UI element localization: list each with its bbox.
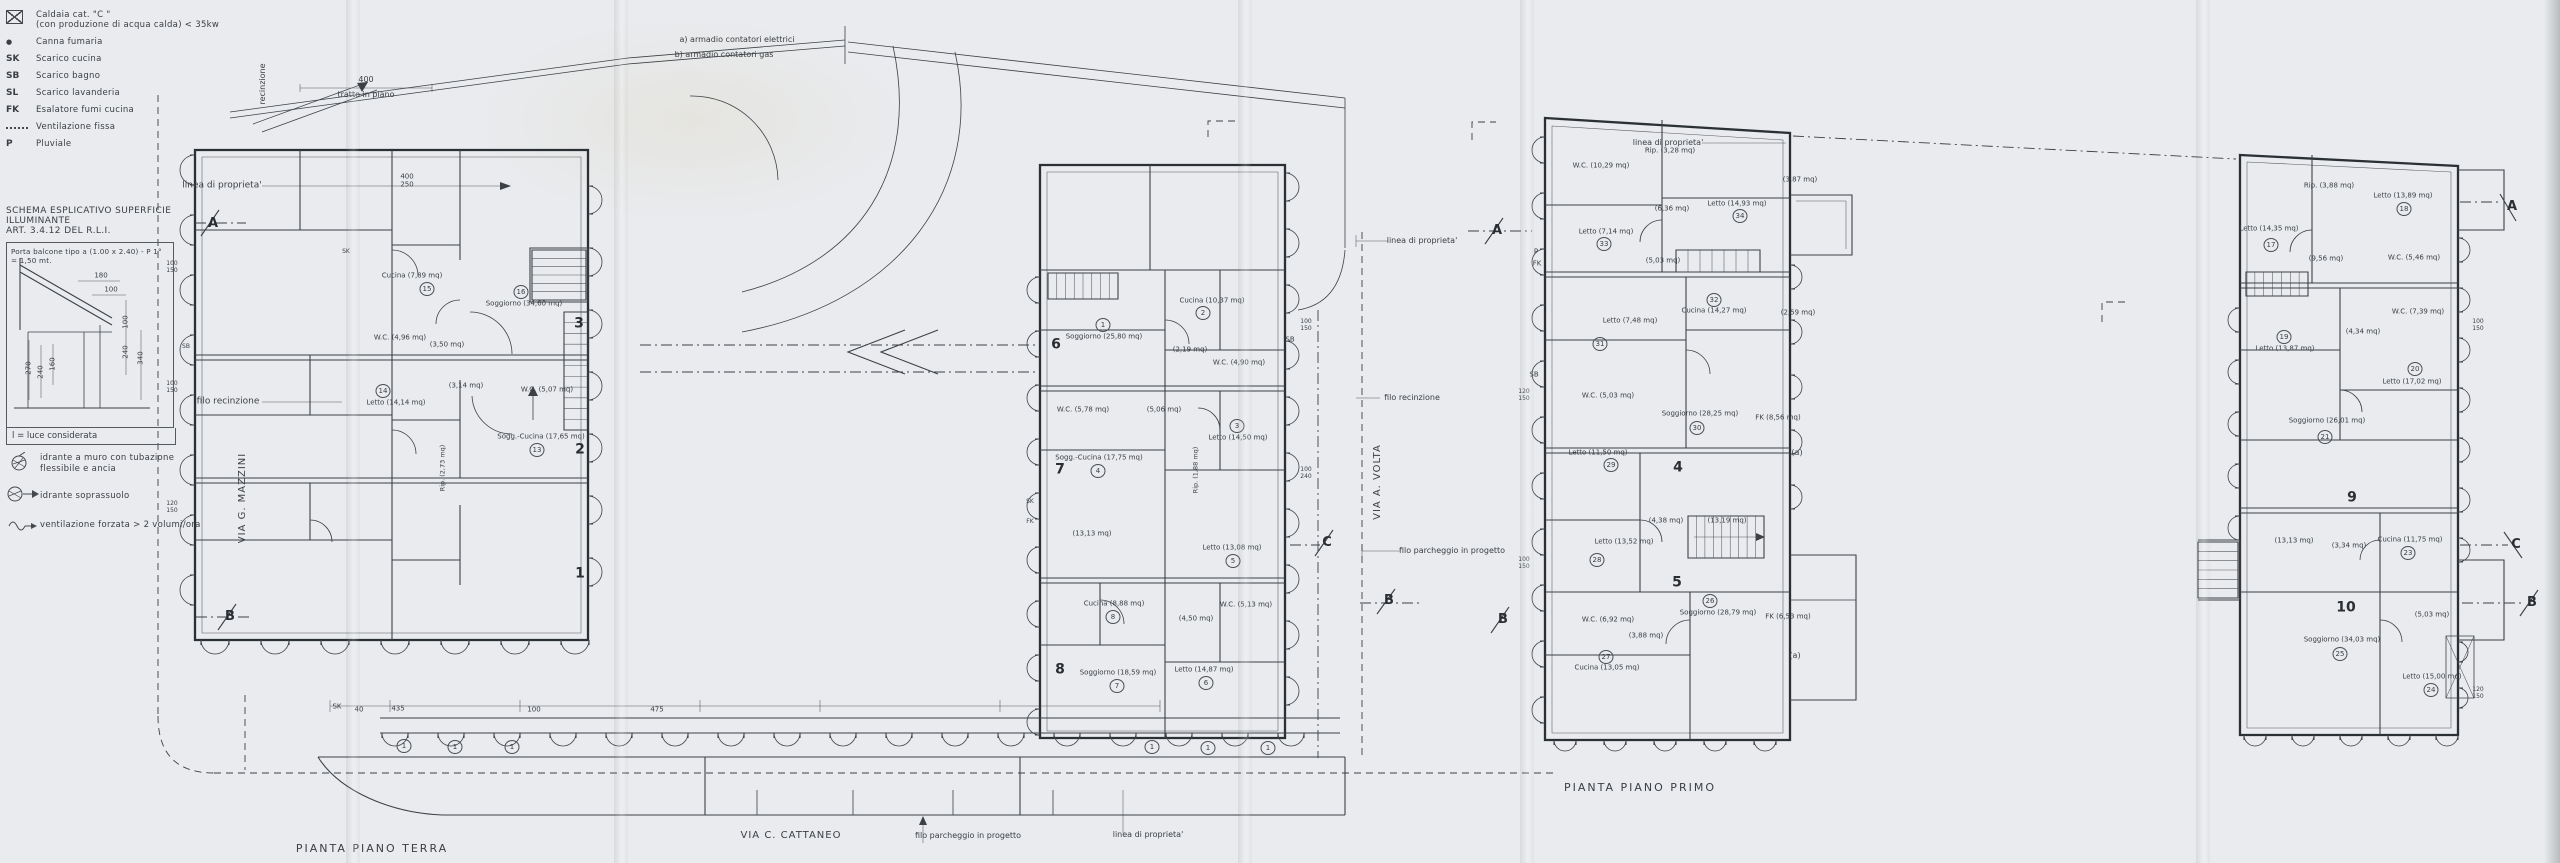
- room-number-badge: 1: [505, 740, 520, 754]
- room-number-badge: 24: [2424, 683, 2439, 697]
- drawing-label: recinzione: [259, 63, 267, 104]
- drawing-label: FK: [1533, 260, 1542, 267]
- drawing-label: Letto (7,14 mq): [1579, 228, 1634, 235]
- drawing-label: (4,50 mq): [1179, 615, 1214, 622]
- section-marker: B: [225, 610, 235, 624]
- unit-number: 10: [2336, 601, 2355, 616]
- drawing-label: W.C. (5,03 mq): [1582, 392, 1634, 399]
- section-marker: C: [2511, 538, 2521, 552]
- room-number-badge: 25: [2333, 647, 2348, 661]
- room-number-badge: 19: [2277, 330, 2292, 344]
- room-number-badge: 29: [1604, 458, 1619, 472]
- schema-frame: Porta balcone tipo a (1.00 x 2.40) - P 1…: [6, 242, 174, 428]
- legend-label: Ventilazione fissa: [36, 122, 115, 132]
- drawing-label: tratto in piano: [337, 91, 394, 99]
- drawing-label: Cucina (14,27 mq): [1681, 307, 1746, 314]
- legend-code: SL: [6, 88, 18, 98]
- schema-caption: l = luce considerata: [6, 428, 176, 445]
- drawing-label: (3,34 mq): [2332, 542, 2367, 549]
- legend-code: FK: [6, 105, 19, 115]
- drawing-label: W.C. (5,07 mq): [521, 386, 573, 393]
- drawing-labels-layer: linea di proprieta'recinzione400tratto i…: [0, 0, 2560, 863]
- section-marker: B: [1498, 613, 1508, 627]
- drawing-label: W.C. (4,90 mq): [1213, 359, 1265, 366]
- drawing-label: Letto (14,93 mq): [1707, 200, 1766, 207]
- drawing-label: filo parcheggio in progetto: [915, 832, 1021, 840]
- drawing-label: (a): [1789, 652, 1800, 660]
- schema-title: SCHEMA ESPLICATIVO SUPERFICIE ILLUMINANT…: [6, 206, 196, 226]
- note-armadio-elettrici: a) armadio contatori elettrici: [679, 36, 794, 44]
- drawing-label: 435: [391, 705, 404, 712]
- drawing-label: (6,36 mq): [1655, 205, 1690, 212]
- unit-number: 5: [1672, 576, 1682, 591]
- drawing-label: Rip. (3,88 mq): [2304, 182, 2354, 189]
- legend-item: Caldaia cat. "C "(con produzione di acqu…: [6, 10, 219, 30]
- drawing-label: (5,03 mq): [2415, 611, 2450, 618]
- section-marker: C: [1322, 536, 1332, 550]
- legend-label: Esalatore fumi cucina: [36, 105, 134, 115]
- room-number-badge: 3: [1230, 419, 1245, 433]
- legend-item: SBScarico bagno: [6, 71, 219, 81]
- drawing-label: (4,38 mq): [1649, 517, 1684, 524]
- drawing-label: W.C. (5,13 mq): [1220, 601, 1272, 608]
- room-number-badge: 30: [1690, 421, 1705, 435]
- section-marker: A: [208, 217, 218, 231]
- drawing-label: SK: [1026, 499, 1034, 505]
- wall-hydrant-icon: [6, 452, 36, 472]
- drawing-label: FK (8,56 mq): [1755, 414, 1800, 421]
- architectural-drawing-sheet: linea di proprieta'recinzione400tratto i…: [0, 0, 2560, 863]
- unit-number: 4: [1673, 461, 1683, 476]
- room-number-badge: 7: [1110, 679, 1125, 693]
- room-number-badge: 27: [1599, 650, 1614, 664]
- drawing-label: Soggiorno (34,60 mq): [486, 300, 563, 307]
- drawing-label: Letto (14,14 mq): [366, 399, 425, 406]
- drawing-label: Soggiorno (28,25 mq): [1662, 410, 1739, 417]
- note-armadio-gas: b) armadio contatori gas: [675, 51, 774, 59]
- fence-line-label: filo recinzione: [197, 397, 260, 406]
- drawing-label: W.C. (5,46 mq): [2388, 254, 2440, 261]
- room-number-badge: 8: [1106, 610, 1121, 624]
- drawing-label: 240: [1300, 474, 1311, 480]
- drawing-label: Cucina (13,05 mq): [1574, 664, 1639, 671]
- unit-number: 2: [575, 443, 585, 458]
- street-label: VIA G. MAZZINI: [238, 453, 249, 543]
- drawing-label: Letto (7,48 mq): [1603, 317, 1658, 324]
- drawing-label: Sogg.-Cucina (17,65 mq): [497, 433, 584, 440]
- legend-label: ventilazione forzata > 2 volumi/ora: [40, 520, 201, 531]
- drawing-label: W.C. (4,96 mq): [374, 334, 426, 341]
- drawing-label: W.C. (5,78 mq): [1057, 406, 1109, 413]
- legend-label: Scarico lavanderia: [36, 88, 120, 98]
- drawing-label: (9,56 mq): [2309, 255, 2344, 262]
- room-number-badge: 1: [1145, 740, 1160, 754]
- drawing-label: SB: [1529, 371, 1538, 378]
- legend-item: SKScarico cucina: [6, 54, 219, 64]
- room-number-badge: 1: [1261, 741, 1276, 755]
- drawing-label: 150: [1518, 564, 1529, 570]
- schema-note: Porta balcone tipo a (1.00 x 2.40) - P 1…: [11, 247, 169, 256]
- drawing-label: (13,13 mq): [1073, 530, 1112, 537]
- legend-item: Ventilazione fissa: [6, 122, 219, 132]
- drawing-label: Soggiorno (26,01 mq): [2289, 417, 2366, 424]
- drawing-label: SB: [1285, 336, 1294, 343]
- room-number-badge: 5: [1226, 554, 1241, 568]
- section-marker: B: [1384, 594, 1394, 608]
- schema-subtitle: ART. 3.4.12 DEL R.L.I.: [6, 226, 196, 236]
- drawing-label: Letto (13,08 mq): [1202, 544, 1261, 551]
- legend-extra-item: idrante a muro con tubazioneflessibile e…: [6, 452, 201, 476]
- property-line-label: linea di proprieta': [182, 181, 261, 190]
- drawing-label: Soggiorno (34,03 mq): [2304, 636, 2381, 643]
- room-number-badge: 1: [1201, 741, 1216, 755]
- room-number-badge: 18: [2397, 202, 2412, 216]
- drawing-label: P: [1534, 248, 1538, 255]
- drawing-label: (3,14 mq): [449, 382, 484, 389]
- drawing-label: Soggiorno (18,59 mq): [1080, 669, 1157, 676]
- room-number-badge: 33: [1597, 237, 1612, 251]
- drawing-label: 150: [1518, 396, 1529, 402]
- legend-code: SK: [6, 54, 19, 64]
- schema-note2: = 1,50 mt.: [11, 256, 169, 265]
- drawing-label: W.C. (7,39 mq): [2392, 308, 2444, 315]
- drawing-label: 150: [2472, 326, 2483, 332]
- drawing-label: (3,50 mq): [430, 341, 465, 348]
- drawing-label: linea di proprieta': [1113, 831, 1184, 839]
- room-number-badge: 1: [1096, 318, 1111, 332]
- drawing-label: filo parcheggio in progetto: [1399, 547, 1505, 555]
- room-number-badge: 31: [1593, 337, 1608, 351]
- drawing-label: linea di proprieta': [1387, 237, 1458, 245]
- drawing-label: (5,06 mq): [1147, 406, 1182, 413]
- legend-extra-item: ventilazione forzata > 2 volumi/ora: [6, 516, 201, 535]
- drawing-label: Letto (15,00 mq): [2402, 673, 2461, 680]
- legend-label: Scarico bagno: [36, 71, 100, 81]
- unit-number: 8: [1055, 663, 1065, 678]
- legend-item: FKEsalatore fumi cucina: [6, 105, 219, 115]
- legend-item: PPluviale: [6, 139, 219, 149]
- room-number-badge: 16: [514, 285, 529, 299]
- room-number-badge: 1: [448, 740, 463, 754]
- room-number-badge: 28: [1590, 553, 1605, 567]
- drawing-label: SK: [332, 703, 341, 710]
- boiler-symbol-icon: [6, 10, 23, 24]
- drawing-label: 475: [650, 706, 663, 713]
- drawing-label: Soggiorno (25,80 mq): [1066, 333, 1143, 340]
- drawing-label: (13,13 mq): [2275, 537, 2314, 544]
- drawing-label: Cucina (11,75 mq): [2377, 536, 2442, 543]
- room-number-badge: 17: [2264, 238, 2279, 252]
- unit-number: 1: [575, 567, 585, 582]
- room-number-badge: 26: [1703, 594, 1718, 608]
- drawing-label: Letto (13,87 mq): [2255, 345, 2314, 352]
- room-number-badge: 14: [376, 384, 391, 398]
- drawing-label: (2,19 mq): [1173, 346, 1208, 353]
- legend-code: SB: [6, 71, 19, 81]
- legend-extra-item: idrante soprassuolo: [6, 485, 201, 507]
- forced-vent-icon: [6, 517, 40, 531]
- drawing-label: Letto (14,50 mq): [1208, 434, 1267, 441]
- legend-extras: idrante a muro con tubazioneflessibile e…: [6, 452, 201, 544]
- drawing-label: 150: [1300, 326, 1311, 332]
- drawing-label: Cucina (8,88 mq): [1084, 600, 1145, 607]
- drawing-label: (3,87 mq): [1783, 176, 1818, 183]
- drawing-label: SK: [342, 249, 350, 255]
- unit-number: 9: [2347, 491, 2357, 506]
- room-number-badge: 1: [397, 739, 412, 753]
- unit-number: 6: [1051, 338, 1061, 353]
- dotted-leader-icon: [6, 127, 28, 129]
- room-number-badge: 23: [2401, 546, 2416, 560]
- drawing-label: 40: [355, 706, 364, 713]
- drawing-label: Cucina (10,37 mq): [1179, 297, 1244, 304]
- legend-item: SLScarico lavanderia: [6, 88, 219, 98]
- room-number-badge: 32: [1707, 293, 1722, 307]
- street-label: VIA A. VOLTA: [1373, 444, 1384, 520]
- drawing-label: Rip. (1,88 mq): [1193, 447, 1200, 494]
- room-number-badge: 15: [420, 282, 435, 296]
- drawing-label: (13,19 mq): [1708, 517, 1747, 524]
- drawing-label: (2,59 mq): [1781, 309, 1816, 316]
- drawing-label: Letto (13,89 mq): [2373, 192, 2432, 199]
- room-number-badge: 21: [2318, 430, 2333, 444]
- drawing-label: (4,34 mq): [2346, 328, 2381, 335]
- drawing-label: linea di proprieta': [1633, 139, 1704, 147]
- drawing-label: (5,03 mq): [1646, 257, 1681, 264]
- legend-item: ●Canna fumaria: [6, 37, 219, 47]
- legend: Caldaia cat. "C "(con produzione di acqu…: [6, 10, 219, 156]
- room-number-badge: 2: [1196, 306, 1211, 320]
- legend-code: P: [6, 139, 13, 149]
- drawing-label: filo recinzione: [1384, 394, 1440, 402]
- ground-hydrant-icon: [6, 485, 40, 503]
- drawing-label: 150: [2472, 694, 2483, 700]
- drawing-label: Letto (11,50 mq): [1568, 449, 1627, 456]
- drawing-label: Letto (14,35 mq): [2239, 225, 2298, 232]
- section-marker: A: [2507, 200, 2517, 214]
- unit-number: 3: [574, 317, 584, 332]
- drawing-label: 400: [358, 76, 373, 84]
- drawing-label: Letto (17,02 mq): [2382, 378, 2441, 385]
- drawing-label: Sogg.-Cucina (17,75 mq): [1055, 454, 1142, 461]
- drawing-label: FK (6,53 mq): [1765, 613, 1810, 620]
- room-number-badge: 4: [1091, 464, 1106, 478]
- drawing-label: FK: [1026, 519, 1033, 525]
- room-number-badge: 20: [2408, 362, 2423, 376]
- section-marker: A: [1492, 224, 1502, 238]
- room-number-badge: 6: [1199, 676, 1214, 690]
- drawing-label: (3,88 mq): [1629, 632, 1664, 639]
- drawing-label: Letto (13,52 mq): [1594, 538, 1653, 545]
- room-number-badge: 13: [530, 443, 545, 457]
- drawing-label: Rip. (3,28 mq): [1645, 147, 1695, 154]
- legend-label: Scarico cucina: [36, 54, 102, 64]
- drawing-label: 250: [400, 181, 413, 188]
- flue-dot-icon: ●: [6, 38, 12, 46]
- drawing-label: 100: [527, 706, 540, 713]
- plan-title-first: PIANTA PIANO PRIMO: [1564, 782, 1716, 794]
- legend-label: idrante soprassuolo: [40, 491, 130, 502]
- street-label: VIA C. CATTANEO: [741, 831, 842, 842]
- unit-number: 7: [1055, 463, 1065, 478]
- drawing-label: (a): [1791, 449, 1802, 457]
- drawing-label: Letto (14,87 mq): [1174, 666, 1233, 673]
- legend-label: Caldaia cat. "C "(con produzione di acqu…: [36, 10, 219, 30]
- room-number-badge: 34: [1733, 209, 1748, 223]
- legend-label: Pluviale: [36, 139, 71, 149]
- legend-label: idrante a muro con tubazioneflessibile e…: [40, 453, 174, 474]
- section-marker: B: [2527, 596, 2537, 610]
- drawing-label: Soggiorno (28,79 mq): [1680, 609, 1757, 616]
- legend-label: Canna fumaria: [36, 37, 103, 47]
- drawing-label: Cucina (7,89 mq): [382, 272, 443, 279]
- drawing-label: W.C. (6,92 mq): [1582, 616, 1634, 623]
- plan-title-ground: PIANTA PIANO TERRA: [296, 843, 448, 855]
- schema-box: SCHEMA ESPLICATIVO SUPERFICIE ILLUMINANT…: [6, 206, 196, 445]
- drawing-label: W.C. (10,29 mq): [1573, 162, 1630, 169]
- drawing-label: Rip. (2,73 mq): [440, 445, 447, 492]
